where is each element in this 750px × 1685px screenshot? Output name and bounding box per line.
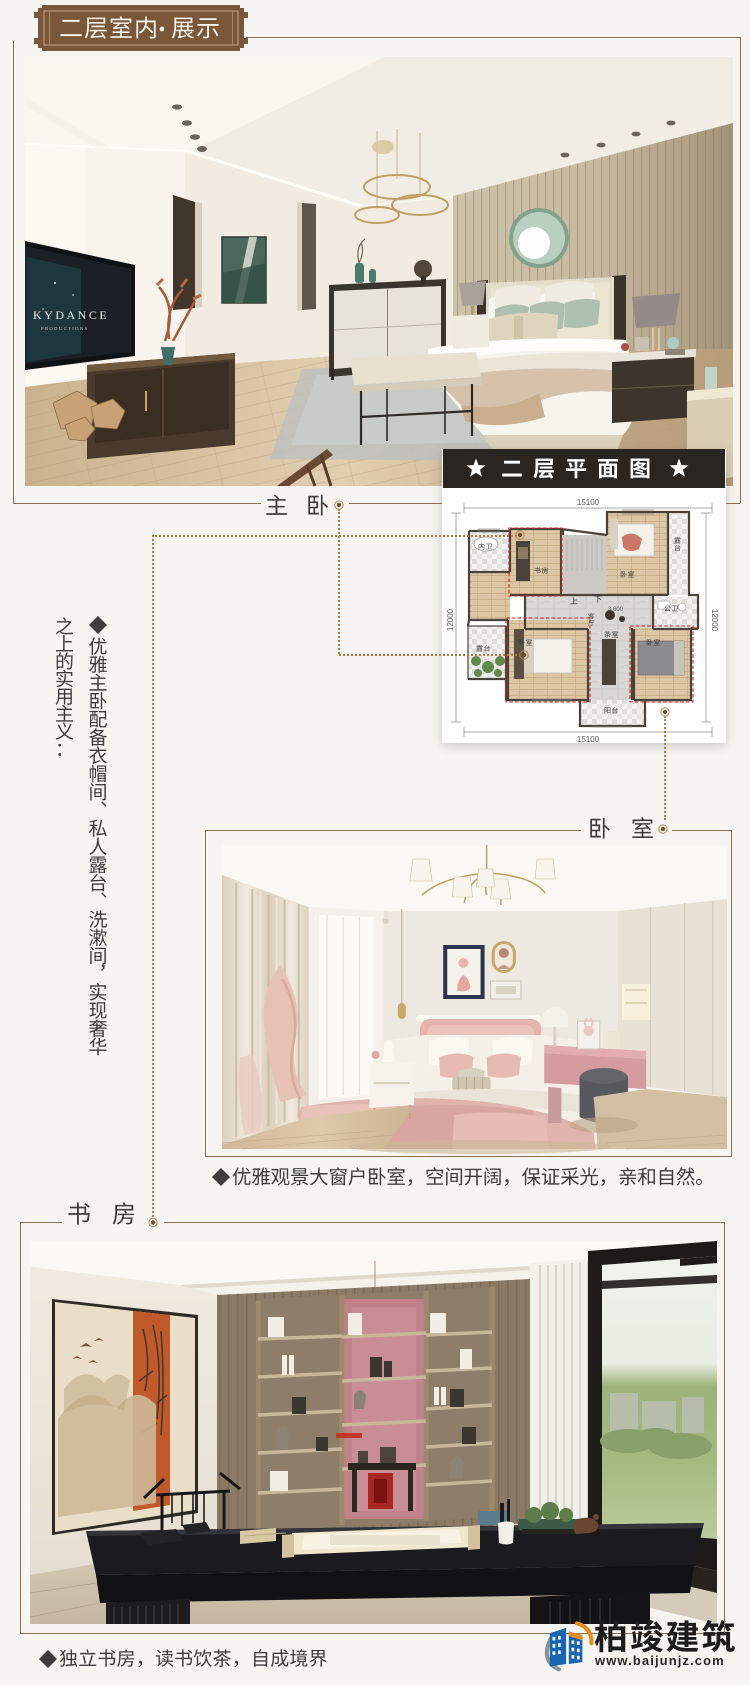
svg-text:PRODUCTIONS: PRODUCTIONS bbox=[41, 326, 89, 331]
svg-text:15100: 15100 bbox=[577, 735, 600, 744]
svg-text:12000: 12000 bbox=[446, 608, 455, 631]
svg-text:15100: 15100 bbox=[577, 498, 600, 507]
svg-text:3.600: 3.600 bbox=[608, 607, 624, 613]
svg-text:KYDANCE: KYDANCE bbox=[33, 308, 109, 322]
svg-text:12000: 12000 bbox=[710, 609, 719, 632]
